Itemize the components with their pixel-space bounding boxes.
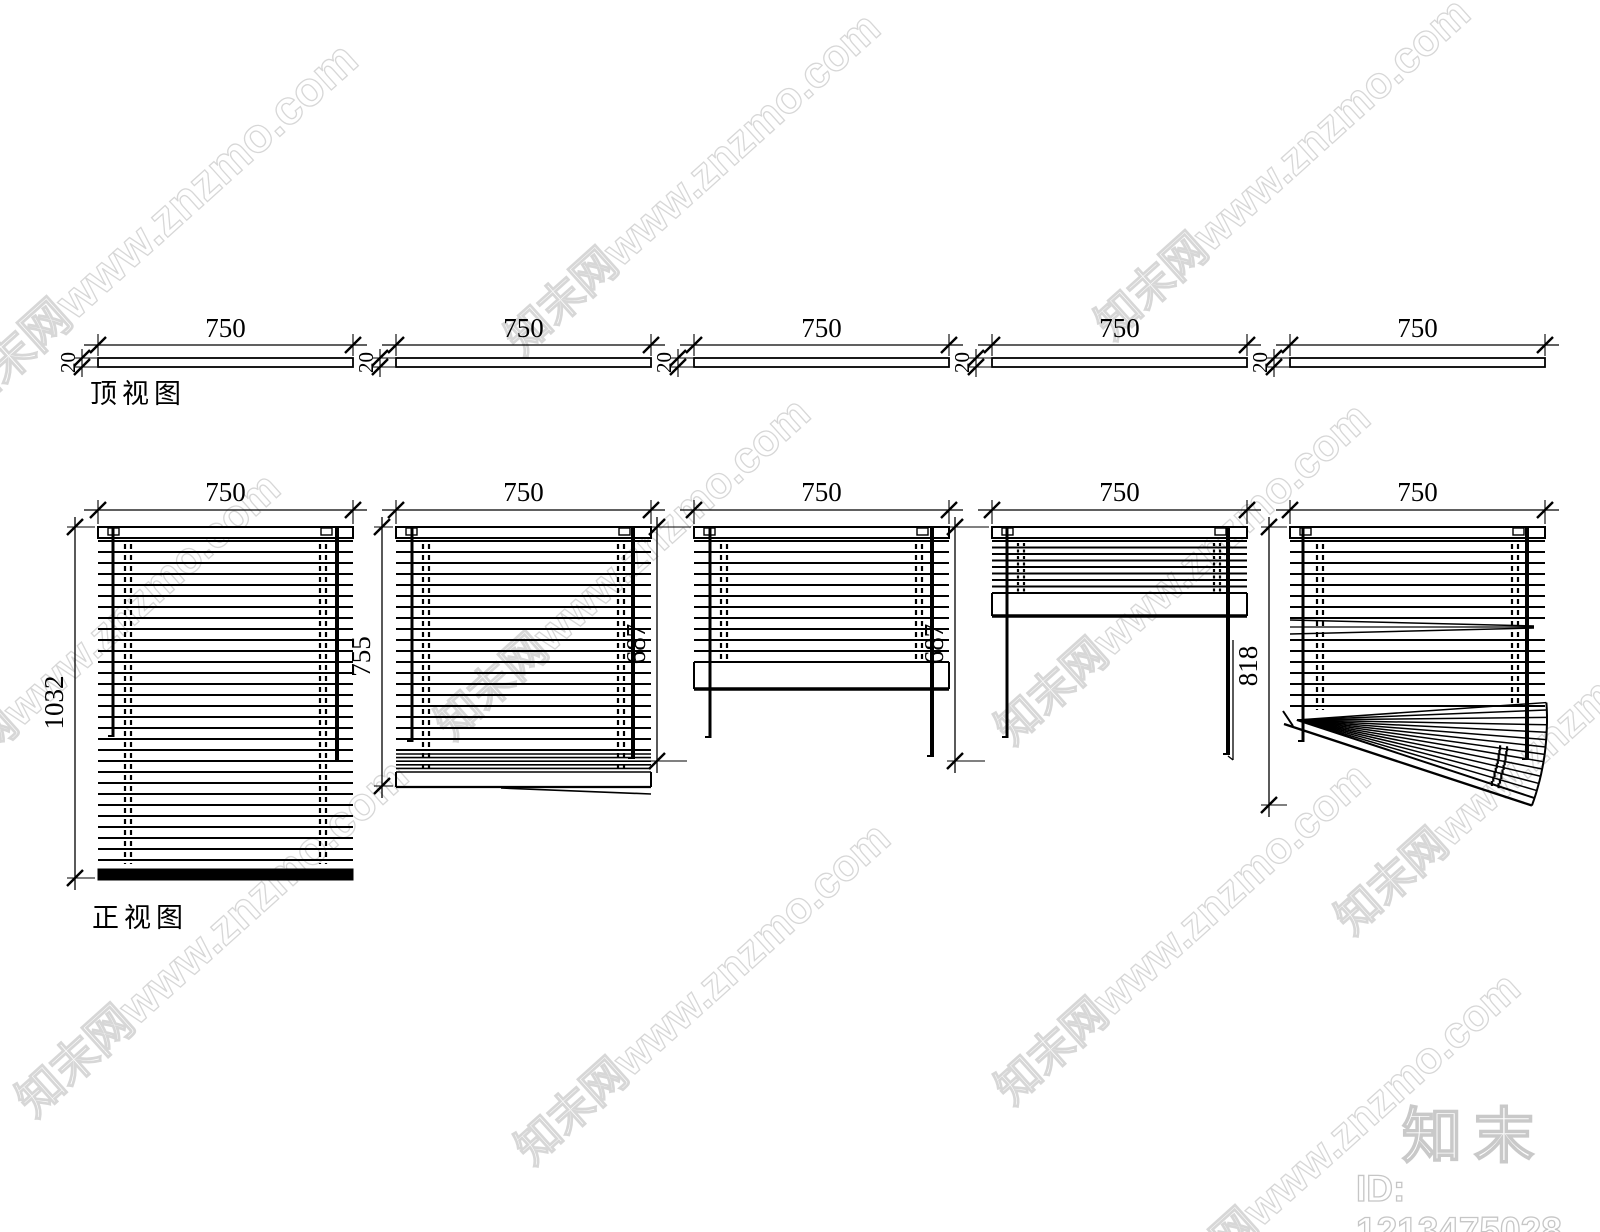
dim-label: 750 <box>1397 477 1438 507</box>
site-logo: 知末 <box>1402 1088 1546 1175</box>
front-view-3-mostly-raised: 750687 <box>621 477 963 773</box>
dim-label: 20 <box>1248 352 1272 373</box>
dim-label: 750 <box>801 313 842 343</box>
top-view-label: 顶视图 <box>90 372 186 411</box>
dim-label: 750 <box>503 477 544 507</box>
top-view-3: 75020 <box>652 313 963 377</box>
dim-label: 750 <box>205 477 246 507</box>
cad-sheet: 知末网www.znzmo.com知末网www.znzmo.com知末网www.z… <box>0 0 1600 1232</box>
front-view-2-half-raised: 750755 <box>346 477 665 798</box>
cad-drawing: 7502075020750207502075020750103275075575… <box>0 0 1600 1232</box>
top-view-4: 75020 <box>950 313 1261 377</box>
dim-label: 20 <box>56 352 80 373</box>
dim-label: 687 <box>919 624 949 665</box>
dim-label: 750 <box>1099 477 1140 507</box>
front-view-5-tilted-fan: 750818 <box>1233 477 1559 817</box>
dim-label: 818 <box>1233 646 1263 687</box>
dim-label: 750 <box>1099 313 1140 343</box>
dim-label: 687 <box>621 624 651 665</box>
front-view-1-fully-lowered: 7501032 <box>39 477 367 890</box>
dim-label: 750 <box>801 477 842 507</box>
dim-label: 20 <box>950 352 974 373</box>
dim-label: 1032 <box>39 676 69 730</box>
top-view-5: 75020 <box>1248 313 1559 377</box>
dim-label: 755 <box>346 636 376 677</box>
top-view-1: 75020 <box>56 313 367 377</box>
top-view-2: 75020 <box>354 313 665 377</box>
front-view-4-fully-raised: 750687 <box>919 477 1261 773</box>
image-id: ID: 1213475028 <box>1356 1168 1600 1232</box>
dim-label: 20 <box>354 352 378 373</box>
dim-label: 750 <box>205 313 246 343</box>
dim-label: 750 <box>1397 313 1438 343</box>
dim-label: 20 <box>652 352 676 373</box>
dim-label: 750 <box>503 313 544 343</box>
front-view-label: 正视图 <box>92 896 188 935</box>
